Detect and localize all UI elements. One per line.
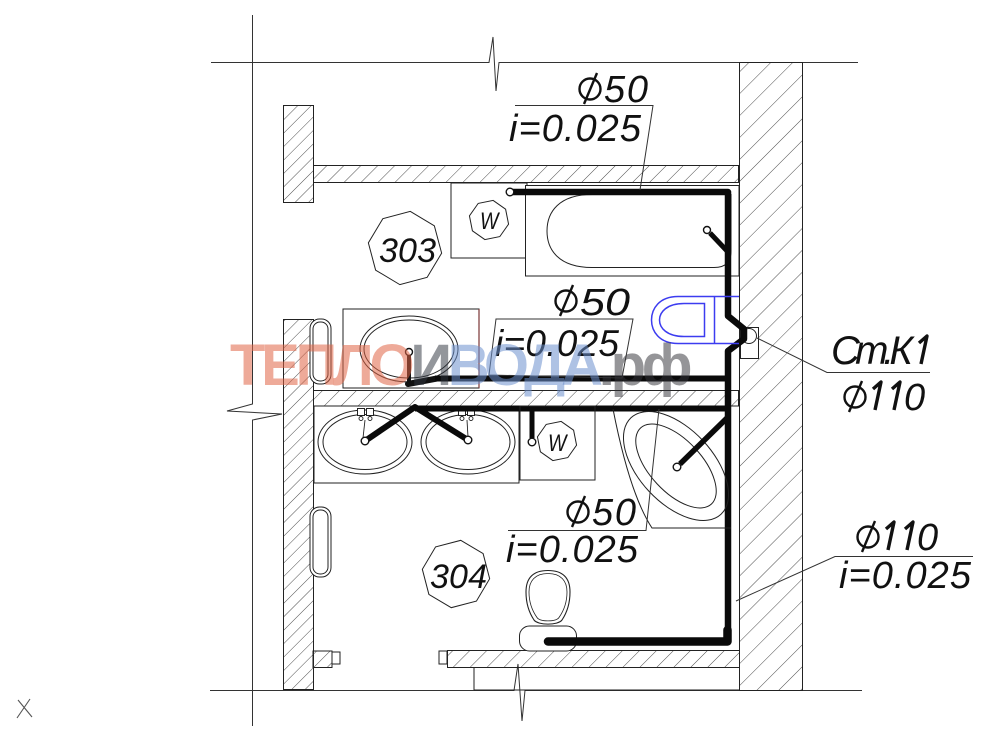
svg-text:303: 303 xyxy=(379,232,436,270)
svg-text:W: W xyxy=(548,430,568,457)
svg-text:i=0.025: i=0.025 xyxy=(506,529,639,571)
svg-text:Ст.К: Ст.К xyxy=(831,329,915,373)
svg-text:0: 0 xyxy=(917,517,938,559)
svg-text:50: 50 xyxy=(604,69,648,111)
svg-text:i=0.025: i=0.025 xyxy=(839,555,972,597)
svg-text:ТЕПЛОИВОДА.рф: ТЕПЛОИВОДА.рф xyxy=(230,333,691,398)
svg-text:W: W xyxy=(480,208,500,235)
svg-text:0: 0 xyxy=(904,377,925,419)
svg-text:50: 50 xyxy=(592,492,636,534)
svg-text:50: 50 xyxy=(580,282,630,324)
svg-text:i=0.025: i=0.025 xyxy=(509,108,642,150)
svg-text:304: 304 xyxy=(430,558,487,596)
